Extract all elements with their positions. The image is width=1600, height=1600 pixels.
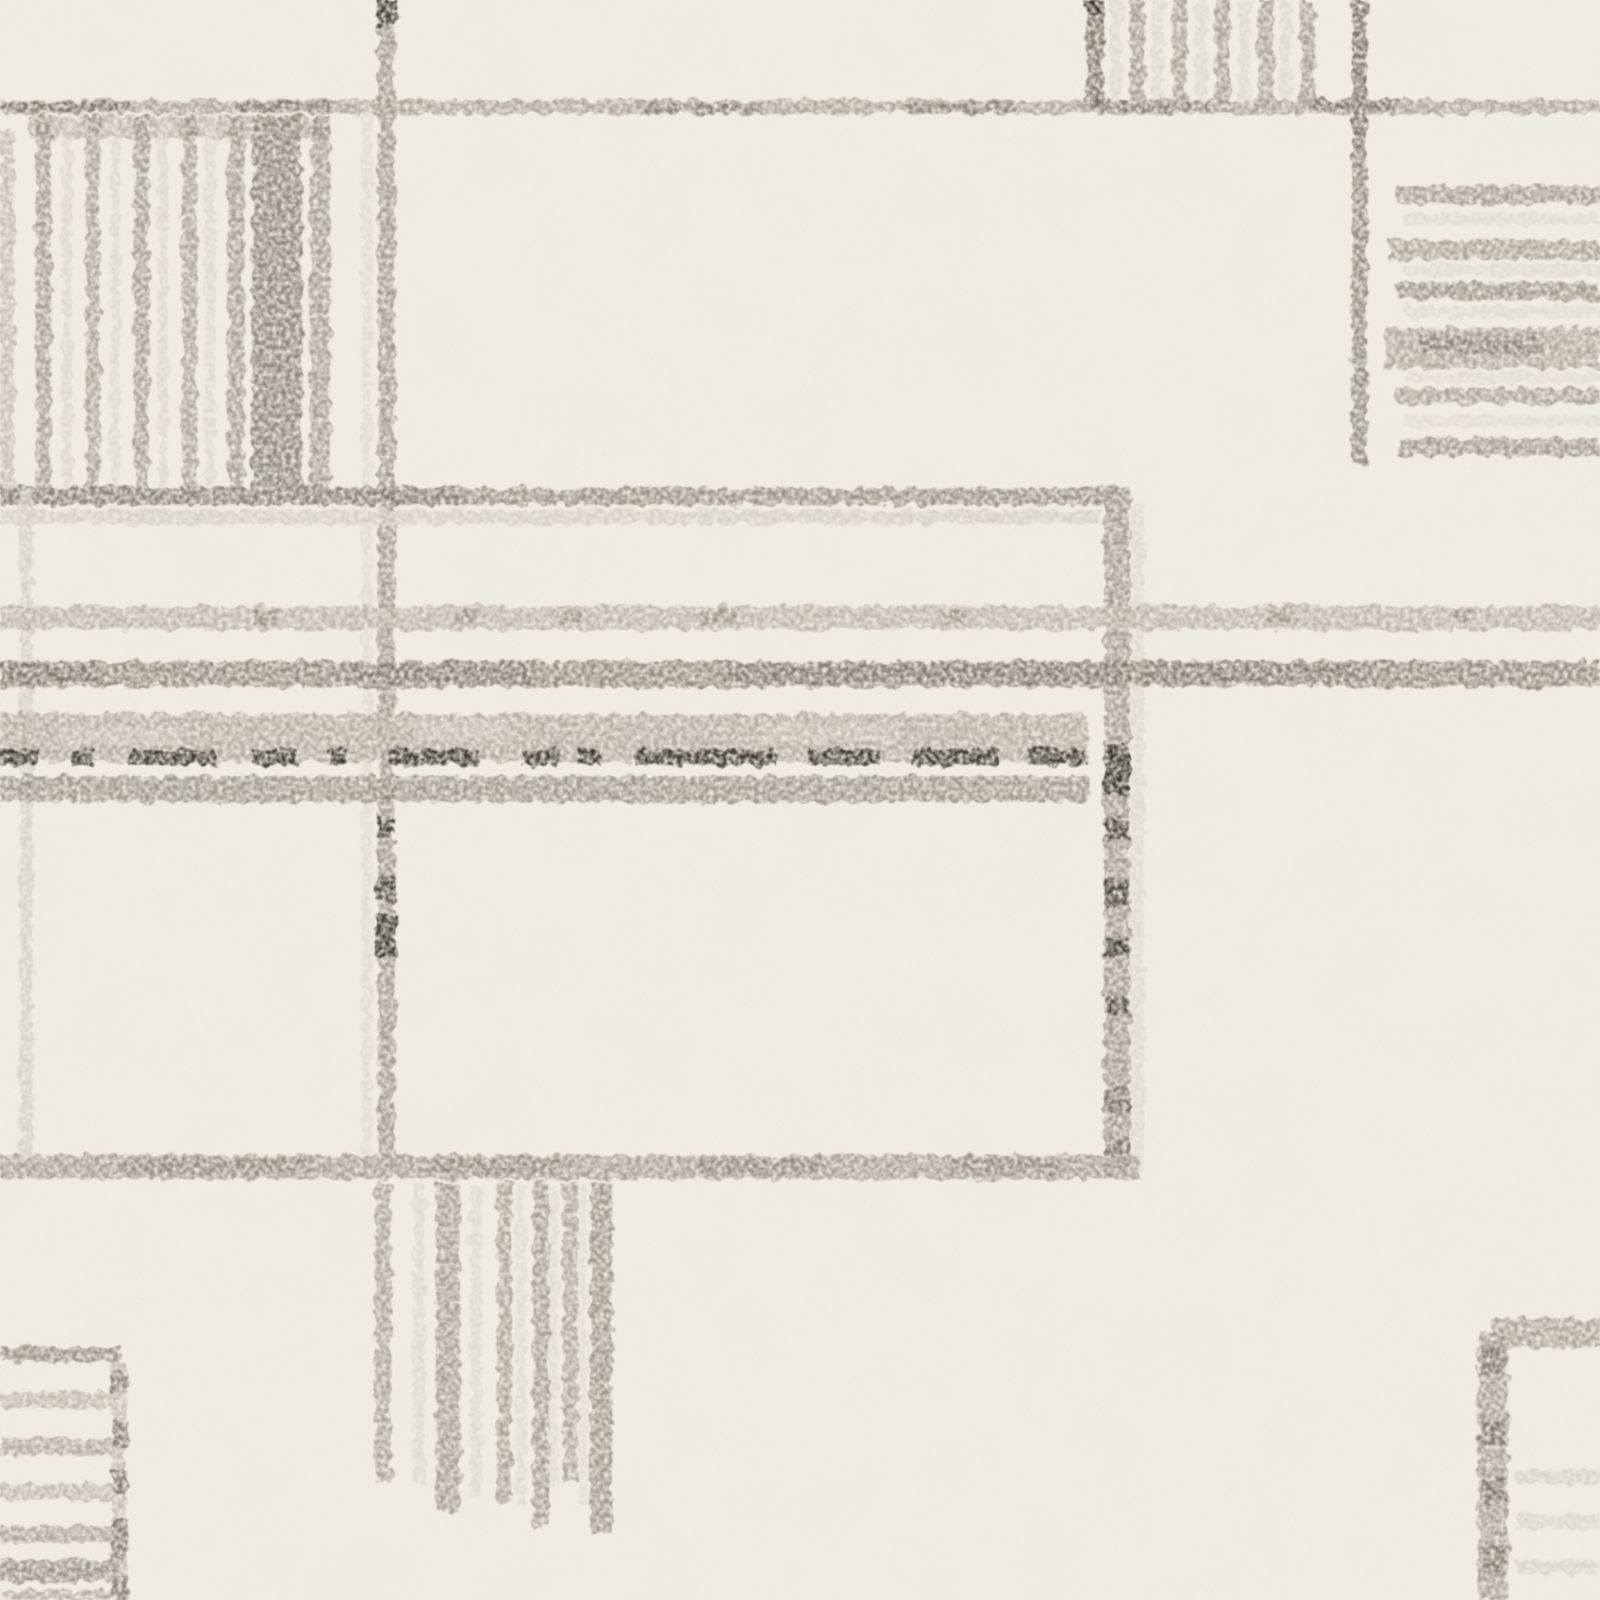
bl-stripe xyxy=(0,1590,112,1600)
bc-stripe-pale xyxy=(580,1185,587,1505)
bl-v-dash xyxy=(112,1372,128,1394)
band-thin-dark-seg xyxy=(730,663,1130,683)
rs-stripe xyxy=(1400,438,1600,456)
dash-row xyxy=(522,749,558,765)
v-line-left-dash xyxy=(377,818,396,838)
dash-row xyxy=(636,749,776,765)
br-v-dash xyxy=(1482,1348,1504,1374)
tr-stripe-pale xyxy=(1280,0,1292,106)
rs-stripe-pale xyxy=(1404,306,1600,318)
br-v-dash xyxy=(1481,1420,1505,1446)
rect-bottom-dash xyxy=(120,1158,310,1174)
dash-row xyxy=(806,749,880,765)
band-thin-light-tick xyxy=(255,610,277,624)
tl-stripe xyxy=(310,116,330,487)
rs-stripe xyxy=(1398,282,1600,300)
tr-stripe-pale xyxy=(1110,0,1122,106)
rect-right-edge-pale xyxy=(1132,500,1144,1170)
bc-stripe xyxy=(497,1182,512,1502)
bl-v-dash xyxy=(112,1520,128,1558)
bc-stripe xyxy=(590,1182,612,1532)
rect-right-dash xyxy=(1104,1086,1130,1112)
band-thin-light-tick xyxy=(700,609,736,624)
rect-right-dash xyxy=(1105,938,1129,958)
tl-stripe-edge xyxy=(0,130,14,490)
bc-stripe xyxy=(375,1182,391,1482)
tr-stripe-pale xyxy=(1195,0,1207,106)
bl-stripe-dark xyxy=(0,1560,118,1582)
tl-stripe xyxy=(86,116,100,487)
bl-stripe xyxy=(0,1392,112,1408)
rug-photo xyxy=(0,0,1600,1600)
tl-stripe-pale xyxy=(158,120,168,485)
tr-stripe xyxy=(1130,0,1145,108)
dash-row xyxy=(388,749,480,765)
tl-stripe xyxy=(36,116,51,487)
top-line-dash xyxy=(0,102,130,112)
bl-stripe xyxy=(0,1484,112,1500)
band-thin-light-tick xyxy=(560,610,578,624)
dash-row xyxy=(252,749,298,765)
rect-top-edge xyxy=(455,488,1120,505)
bc-stripe xyxy=(436,1182,460,1512)
bc-stripe-pale xyxy=(413,1185,425,1485)
v-line-left-top-black xyxy=(377,0,397,26)
v-line-left-dash xyxy=(375,914,397,956)
dash-row xyxy=(0,749,38,765)
rs-stripe xyxy=(1396,186,1600,204)
br-stripe-pale xyxy=(1516,1515,1600,1529)
dash-row xyxy=(578,749,600,765)
tl-stripe-pale xyxy=(62,120,72,485)
tr-stripe xyxy=(1300,0,1315,108)
band-thick-light xyxy=(60,726,180,744)
dash-row xyxy=(128,749,216,765)
v-line-left xyxy=(378,0,395,1168)
tr-stripe-pale xyxy=(1152,0,1164,106)
tl-stripe xyxy=(228,116,244,487)
rect-bottom-dash xyxy=(700,1158,820,1174)
top-line-dash xyxy=(235,102,330,112)
bc-stripe xyxy=(563,1182,578,1482)
rs-stripe-pale xyxy=(1404,264,1600,276)
br-stripe-pale xyxy=(1516,1560,1600,1574)
band-thick-light xyxy=(760,724,900,742)
tr-stripe-pale xyxy=(1238,0,1250,106)
rect-top-edge-dark xyxy=(0,487,460,505)
bc-stripe-pale xyxy=(550,1185,558,1485)
dash-row xyxy=(328,749,344,765)
band-thin-light-tick xyxy=(940,610,966,624)
band-thin-light-tick xyxy=(1270,609,1294,623)
bl-stripe xyxy=(0,1526,112,1543)
bl-stripe xyxy=(0,1438,112,1455)
top-line-dash xyxy=(905,103,1015,113)
rs-stripe-dots xyxy=(1420,336,1540,354)
rect-right-dash xyxy=(1104,880,1129,906)
bc-stripe-pale xyxy=(516,1185,526,1505)
rect-top-edge-pale xyxy=(0,510,1100,524)
rect-right-dash xyxy=(1106,995,1128,1015)
top-line-dash xyxy=(1090,101,1210,111)
top-line-dash xyxy=(640,103,760,113)
tl-stripe-pale xyxy=(110,120,120,485)
band-lower xyxy=(0,776,1088,802)
rug-photo-canvas xyxy=(0,0,1600,1600)
band-thin-light-tick xyxy=(455,610,477,624)
br-stripe-pale xyxy=(1516,1470,1600,1484)
rs-stripe xyxy=(1388,240,1600,260)
v-line-left-dash xyxy=(376,876,396,902)
dash-row xyxy=(912,749,998,765)
rs-stripe-pale xyxy=(1404,416,1600,426)
band-thin-dark-seg xyxy=(350,664,530,682)
bc-stripe-pale xyxy=(470,1185,482,1495)
bc-stripe xyxy=(533,1182,549,1527)
band-thin-light-tick xyxy=(1452,609,1472,623)
rect-left-edge xyxy=(20,490,33,1158)
rect-right-dash xyxy=(1104,743,1130,793)
tl-stripe-cap xyxy=(30,116,330,138)
rs-stripe-pale xyxy=(1404,372,1600,383)
dash-row xyxy=(1028,749,1086,765)
tr-stripe xyxy=(1258,0,1274,108)
band-thick-light xyxy=(420,720,510,740)
tr-stripe-dark xyxy=(1086,0,1104,108)
band-thin-dark-seg xyxy=(0,664,95,682)
tl-stripe-pale xyxy=(205,120,215,485)
tl-stripe xyxy=(134,116,149,487)
br-v-dash xyxy=(1483,1545,1505,1575)
rect-right-dash xyxy=(1105,818,1129,840)
bl-top-line xyxy=(0,1347,122,1362)
rect-bottom-dash xyxy=(950,1158,1060,1174)
tr-stripe xyxy=(1172,0,1187,108)
tr-stripe-black-cap xyxy=(1086,0,1104,14)
rect-bottom-dash xyxy=(430,1158,560,1174)
bl-v-dash xyxy=(112,1470,128,1494)
br-top-band xyxy=(1492,1318,1600,1348)
tl-stripe-wide xyxy=(252,116,302,487)
band-thin-dark-seg xyxy=(1140,664,1360,682)
rs-stripe-pale xyxy=(1404,213,1600,225)
dash-row xyxy=(72,749,94,765)
br-v-dash xyxy=(1482,1478,1504,1504)
tr-stripe xyxy=(1215,0,1230,108)
tl-stripe xyxy=(182,116,197,487)
bl-v-dash xyxy=(112,1420,128,1448)
rs-stripe xyxy=(1394,388,1600,404)
band-thin-light xyxy=(0,606,1600,630)
v-line-right-dark xyxy=(1352,0,1367,150)
